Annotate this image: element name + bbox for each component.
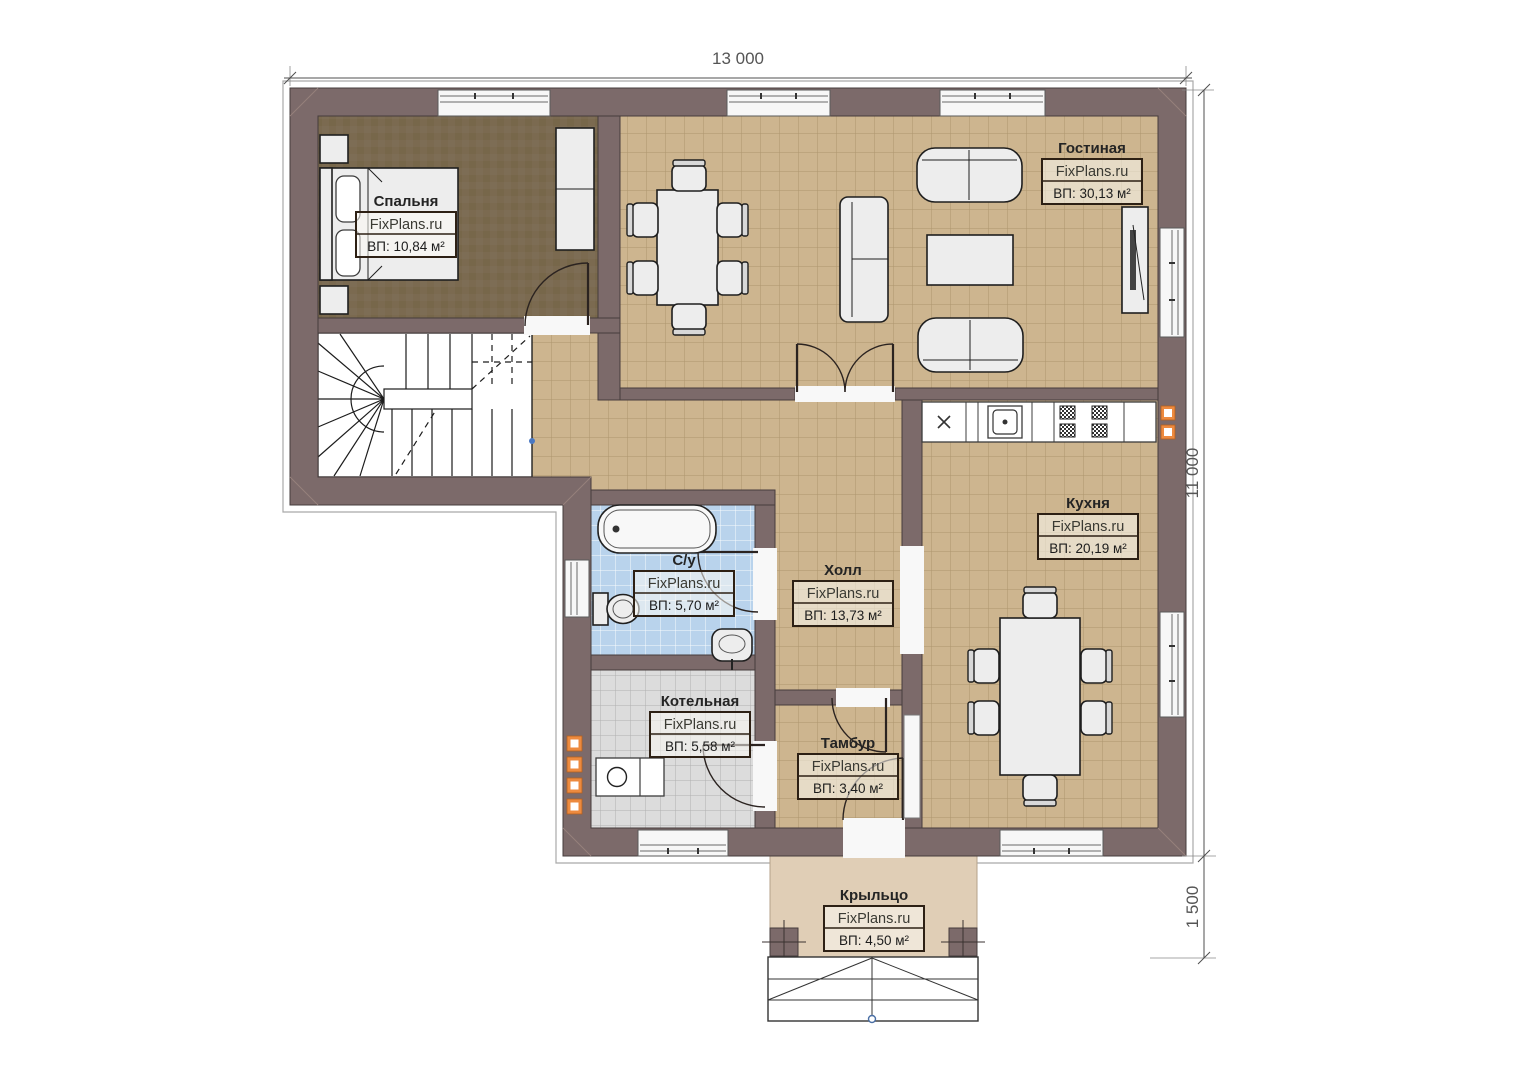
wall-bedroom-living: [598, 116, 620, 400]
sink-icon: [988, 406, 1022, 438]
room-area: ВП: 5,70 м²: [649, 598, 720, 613]
window-kitchen-right: [1160, 612, 1184, 717]
passage-hall-kitchen: [900, 546, 924, 654]
toilet: [593, 593, 639, 625]
room-watermark: FixPlans.ru: [812, 759, 885, 775]
room-name: Спальня: [374, 193, 439, 210]
window-boiler: [638, 830, 728, 856]
corridor-floor: [532, 333, 598, 477]
window-living: [940, 90, 1045, 116]
stairs-node-dot: [529, 438, 535, 444]
hall-upper-floor: [598, 400, 902, 490]
room-watermark: FixPlans.ru: [1056, 164, 1129, 180]
room-name: Холл: [824, 562, 862, 579]
window-bedroom: [438, 90, 550, 116]
vent-icon: [1161, 425, 1175, 439]
kitchen-counter: [922, 402, 1156, 442]
room-name: Тамбур: [821, 735, 875, 752]
tv-stand: [1122, 207, 1148, 313]
room-watermark: FixPlans.ru: [1052, 519, 1125, 535]
room-watermark: FixPlans.ru: [648, 576, 721, 592]
room-watermark: FixPlans.ru: [370, 217, 443, 233]
wardrobe: [556, 128, 594, 250]
wall-bathroom-top: [591, 490, 775, 505]
window-living-right: [1160, 228, 1184, 337]
room-name: Гостиная: [1058, 140, 1126, 157]
vent-icon: [567, 778, 582, 793]
loveseat-bottom: [918, 318, 1023, 372]
label-boiler: Котельная FixPlans.ru ВП: 5,58 м²: [650, 693, 750, 757]
nightstand: [320, 286, 348, 314]
room-area: ВП: 5,58 м²: [665, 739, 736, 754]
boiler-unit: [596, 758, 664, 796]
wall-living-hall-right: [895, 388, 1158, 400]
room-name: Крыльцо: [840, 887, 908, 904]
room-name: С/у: [672, 552, 696, 569]
floor-plan: Спальня FixPlans.ru ВП: 10,84 м² Гостина…: [0, 0, 1528, 1080]
sofa-left: [840, 197, 888, 322]
room-area: ВП: 30,13 м²: [1053, 186, 1131, 201]
corridor-floor-sliver: [591, 477, 598, 490]
room-name: Кухня: [1066, 495, 1110, 512]
room-area: ВП: 3,40 м²: [813, 781, 884, 796]
vent-icon: [1161, 406, 1175, 420]
room-area: ВП: 20,19 м²: [1049, 541, 1127, 556]
stairs-landing: [384, 389, 472, 409]
nightstand: [320, 135, 348, 163]
vent-icon: [567, 799, 582, 814]
window-bathroom: [565, 560, 589, 617]
window-dining: [727, 90, 830, 116]
room-watermark: FixPlans.ru: [838, 911, 911, 927]
dimension-porch-label: 1 500: [1183, 886, 1202, 929]
kitchen-niche: [904, 715, 920, 818]
room-name: Котельная: [661, 693, 740, 710]
room-watermark: FixPlans.ru: [807, 586, 880, 602]
coffee-table: [927, 235, 1013, 285]
room-area: ВП: 13,73 м²: [804, 608, 882, 623]
dimension-width-label: 13 000: [712, 49, 764, 68]
porch-steps: [768, 957, 978, 1023]
wall-living-hall-left: [620, 388, 795, 400]
room-area: ВП: 10,84 м²: [367, 239, 445, 254]
window-kitchen-bottom: [1000, 830, 1103, 856]
room-watermark: FixPlans.ru: [664, 717, 737, 733]
vent-icon: [567, 757, 582, 772]
vent-icon: [567, 736, 582, 751]
dimension-height-label: 11 000: [1183, 448, 1202, 499]
loveseat-top: [917, 148, 1022, 202]
room-area: ВП: 4,50 м²: [839, 933, 910, 948]
bathtub: [598, 505, 716, 553]
